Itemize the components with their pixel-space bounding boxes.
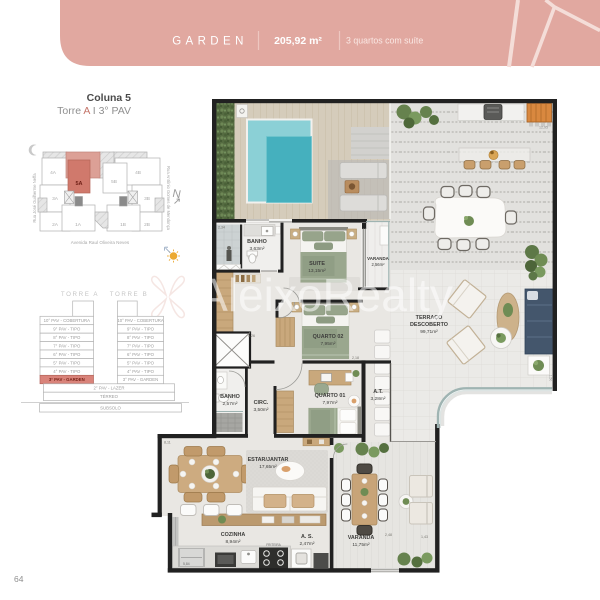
svg-text:BANHO: BANHO	[247, 239, 267, 245]
svg-text:12,95: 12,95	[539, 126, 548, 130]
svg-text:8° PAV - TIPO: 8° PAV - TIPO	[53, 335, 81, 340]
svg-text:3B: 3B	[144, 196, 150, 202]
svg-text:3A: 3A	[52, 196, 59, 202]
svg-text:4° PAV - TIPO: 4° PAV - TIPO	[53, 369, 81, 374]
svg-text:VARANDA: VARANDA	[348, 535, 375, 541]
svg-text:Torre A I 3° PAV: Torre A I 3° PAV	[57, 105, 131, 117]
svg-text:9° PAV - TIPO: 9° PAV - TIPO	[53, 327, 81, 332]
svg-text:QUARTO 01: QUARTO 01	[315, 393, 346, 399]
svg-text:TORRE B: TORRE B	[110, 291, 149, 298]
svg-text:10° PAV - COBERTURA: 10° PAV - COBERTURA	[44, 318, 91, 323]
svg-text:2,47m²: 2,47m²	[300, 541, 315, 547]
svg-text:2B: 2B	[144, 222, 150, 228]
svg-text:5,26: 5,26	[248, 334, 255, 338]
svg-text:6° PAV - TIPO: 6° PAV - TIPO	[53, 352, 81, 357]
svg-text:VARANDA: VARANDA	[367, 256, 389, 261]
svg-text:DESCOBERTO: DESCOBERTO	[410, 322, 448, 328]
svg-text:5° PAV - TIPO: 5° PAV - TIPO	[53, 360, 81, 365]
svg-text:2,56m²: 2,56m²	[371, 262, 385, 267]
svg-text:7,97m²: 7,97m²	[323, 400, 338, 406]
svg-text:64: 64	[14, 574, 24, 584]
svg-text:A.T.: A.T.	[373, 389, 383, 395]
svg-text:4B: 4B	[135, 170, 141, 176]
svg-text:CIRC.: CIRC.	[254, 400, 269, 406]
svg-text:10° PAV - COBERTURA: 10° PAV - COBERTURA	[117, 318, 164, 323]
svg-text:3,28m²: 3,28m²	[371, 396, 386, 402]
svg-text:6° PAV - TIPO: 6° PAV - TIPO	[127, 352, 155, 357]
svg-text:COZINHA: COZINHA	[221, 532, 246, 538]
svg-text:7,95m²: 7,95m²	[321, 341, 336, 347]
svg-text:Rua José Guilherme Neffa: Rua José Guilherme Neffa	[32, 173, 37, 223]
svg-text:4A: 4A	[50, 170, 57, 176]
svg-text:11,75m²: 11,75m²	[352, 542, 370, 548]
svg-text:BANHO: BANHO	[220, 394, 240, 400]
svg-text:17,65m²: 17,65m²	[259, 464, 277, 470]
svg-text:9° PAV - TIPO: 9° PAV - TIPO	[127, 327, 155, 332]
svg-text:3 quartos com suíte: 3 quartos com suíte	[346, 36, 423, 46]
svg-text:Avenida Raul Oliveira Neves: Avenida Raul Oliveira Neves	[71, 240, 130, 245]
svg-text:2,57m²: 2,57m²	[223, 401, 238, 407]
svg-text:99,71m²: 99,71m²	[420, 329, 438, 335]
svg-text:FRITEIRA: FRITEIRA	[266, 543, 281, 547]
svg-text:Rua Antônio Gomes de Mendonça: Rua Antônio Gomes de Mendonça	[166, 166, 171, 231]
svg-text:2,34: 2,34	[218, 226, 225, 230]
svg-text:SUITE: SUITE	[309, 261, 325, 267]
svg-text:1B: 1B	[120, 222, 126, 228]
svg-text:7° PAV - TIPO: 7° PAV - TIPO	[127, 344, 155, 349]
svg-text:5° PAV - TIPO: 5° PAV - TIPO	[127, 360, 155, 365]
svg-text:2A: 2A	[52, 222, 59, 228]
svg-text:8° PAV - TIPO: 8° PAV - TIPO	[127, 335, 155, 340]
svg-text:4° PAV - TIPO: 4° PAV - TIPO	[127, 369, 155, 374]
svg-text:3° PAV - GARDEN: 3° PAV - GARDEN	[49, 377, 85, 382]
svg-text:5B: 5B	[111, 179, 117, 185]
svg-text:1,50: 1,50	[549, 375, 553, 382]
svg-text:8,11: 8,11	[164, 441, 171, 445]
svg-text:1,43: 1,43	[421, 535, 428, 539]
svg-text:3,63m²: 3,63m²	[250, 246, 265, 252]
svg-text:205,92 m²: 205,92 m²	[274, 35, 322, 47]
svg-text:QUARTO 02: QUARTO 02	[313, 334, 344, 340]
svg-text:1A: 1A	[75, 222, 82, 228]
svg-text:8,94m²: 8,94m²	[226, 539, 241, 545]
svg-text:AleixoRealty: AleixoRealty	[197, 269, 453, 321]
svg-text:3° PAV - GARDEN: 3° PAV - GARDEN	[123, 377, 158, 382]
svg-text:2,48: 2,48	[385, 533, 392, 537]
svg-text:TÉRREO: TÉRREO	[100, 394, 119, 399]
svg-text:3,50m²: 3,50m²	[254, 407, 269, 413]
svg-text:7° PAV - TIPO: 7° PAV - TIPO	[53, 344, 81, 349]
svg-text:2,18: 2,18	[352, 356, 359, 360]
svg-text:Coluna 5: Coluna 5	[87, 92, 131, 104]
svg-text:5A: 5A	[75, 181, 82, 187]
svg-text:A. S.: A. S.	[301, 534, 313, 540]
svg-text:SUBSOLO: SUBSOLO	[100, 406, 121, 411]
svg-text:5,84: 5,84	[183, 562, 190, 566]
svg-text:TORRE A: TORRE A	[61, 291, 99, 298]
svg-text:GARDEN: GARDEN	[172, 36, 248, 48]
svg-text:2° PAV - LAZER: 2° PAV - LAZER	[94, 386, 125, 391]
svg-text:ESTAR/JANTAR: ESTAR/JANTAR	[248, 457, 289, 463]
